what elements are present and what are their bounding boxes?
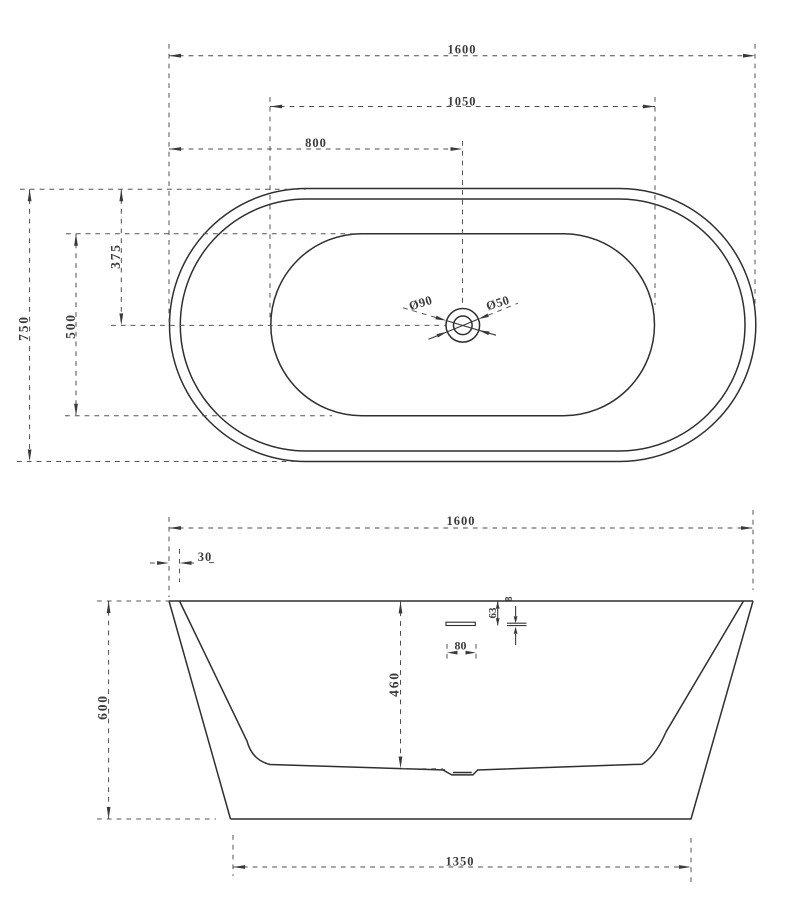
svg-text:63: 63 (487, 607, 499, 619)
svg-text:600: 600 (95, 694, 110, 720)
svg-text:375: 375 (108, 243, 123, 269)
svg-text:460: 460 (387, 671, 402, 697)
svg-text:750: 750 (16, 315, 31, 341)
svg-text:500: 500 (63, 313, 78, 339)
svg-text:1050: 1050 (448, 95, 477, 109)
svg-text:800: 800 (305, 136, 327, 150)
svg-text:8: 8 (504, 597, 515, 602)
svg-text:1350: 1350 (446, 855, 475, 869)
svg-text:1600: 1600 (447, 514, 476, 528)
svg-text:80: 80 (455, 639, 467, 653)
svg-text:30: 30 (198, 550, 213, 564)
svg-text:1600: 1600 (448, 43, 477, 57)
